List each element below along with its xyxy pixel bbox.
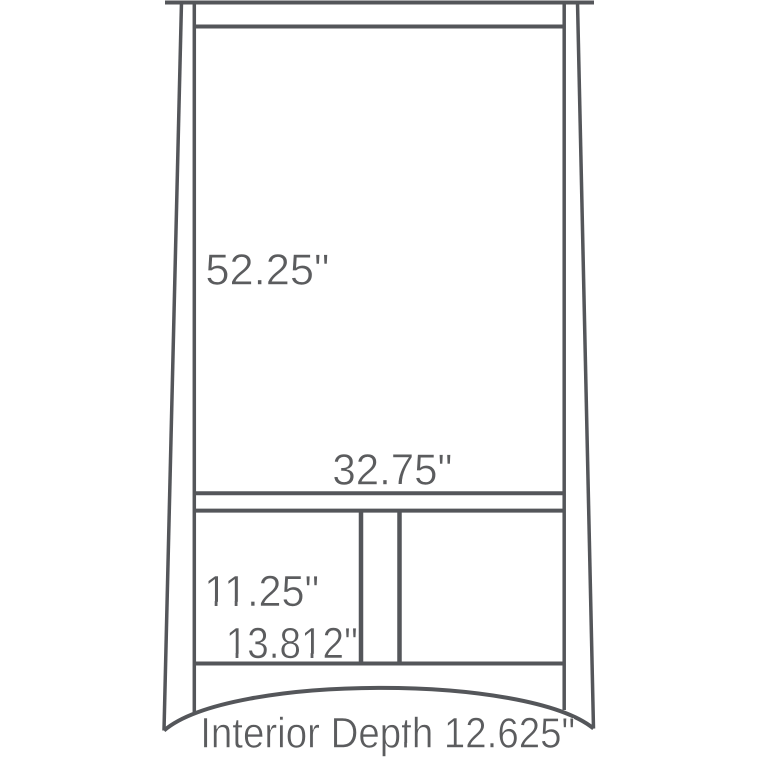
svg-text:32.75": 32.75" (332, 447, 452, 495)
svg-text:52.25": 52.25" (205, 247, 329, 295)
svg-text:11.25": 11.25" (204, 568, 319, 616)
svg-text:Interior Depth 12.625": Interior Depth 12.625" (200, 709, 575, 757)
svg-text:13.812": 13.812" (226, 620, 358, 668)
